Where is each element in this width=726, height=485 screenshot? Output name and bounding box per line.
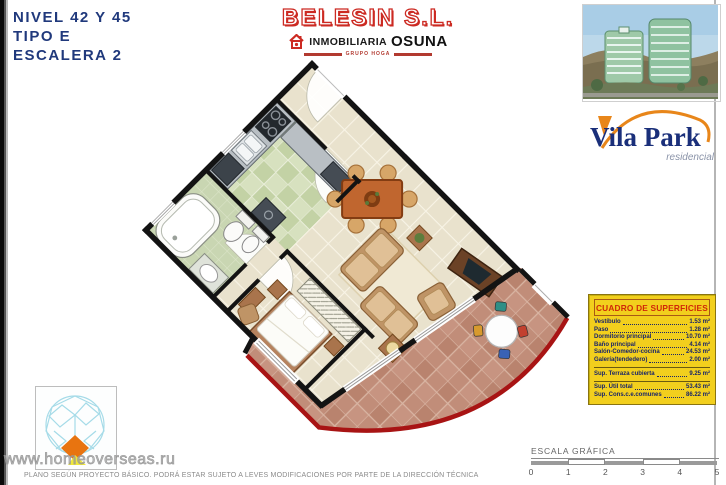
- building-photo: [582, 4, 721, 102]
- tower-left: [605, 27, 643, 83]
- type-line: TIPO E: [13, 27, 132, 46]
- floor-plan: [130, 48, 592, 448]
- tower-right: [649, 19, 691, 83]
- belesin-wordmark: BELESIN S.L.: [278, 4, 458, 31]
- surfaces-table-title: CUADRO DE SUPERFICIES: [594, 299, 710, 316]
- table-row: Salón-Comedor-cocina24.53 m²: [594, 349, 710, 357]
- building-photo-art: [583, 5, 718, 99]
- scale-bar: [531, 458, 719, 466]
- level-line: NIVEL 42 Y 45: [13, 8, 132, 27]
- watermark: www.homeoverseas.ru: [4, 451, 175, 469]
- table-row: Galería(tendedero)2.00 m²: [594, 357, 710, 365]
- scale-title: ESCALA GRÁFICA: [531, 446, 719, 456]
- terrace-chair: [473, 325, 483, 337]
- table-row: Sup. Útil total53.43 m²: [594, 384, 710, 392]
- graphic-scale: ESCALA GRÁFICA 0 1 2 3 4 5: [531, 446, 719, 478]
- surfaces-table: CUADRO DE SUPERFICIES Vestíbulo1.53 m² P…: [588, 294, 716, 405]
- floor-plan-sheet: NIVEL 42 Y 45 TIPO E ESCALERA 2 BELESIN …: [0, 0, 726, 485]
- vilapark-wordmark: Vila Park: [590, 122, 701, 152]
- table-row: Sup. Terraza cubierta9.25 m²: [594, 371, 710, 379]
- house-icon: [288, 34, 305, 49]
- table-row: Vestíbulo1.53 m²: [594, 319, 710, 327]
- plan-title-block: NIVEL 42 Y 45 TIPO E ESCALERA 2: [13, 8, 132, 65]
- disclaimer-text: PLANO SEGÚN PROYECTO BÁSICO. PODRÁ ESTAR…: [24, 472, 479, 479]
- table-row: Dormitorio principal10.70 m²: [594, 334, 710, 342]
- inmobiliaria-label: INMOBILIARIA: [309, 36, 387, 48]
- vilapark-logo: Vila Park residencial: [582, 102, 719, 166]
- terrace-chair: [495, 302, 507, 312]
- table-divider: [594, 367, 710, 368]
- scale-ticks: 0 1 2 3 4 5: [531, 467, 719, 478]
- stair-line: ESCALERA 2: [13, 46, 132, 65]
- table-divider: [594, 381, 710, 382]
- residencial-label: residencial: [666, 152, 715, 163]
- terrace-chair: [498, 349, 510, 359]
- scan-edge-artifact: [0, 0, 8, 485]
- table-row: Sup. Cons.c.e.comunes86.22 m²: [594, 392, 710, 400]
